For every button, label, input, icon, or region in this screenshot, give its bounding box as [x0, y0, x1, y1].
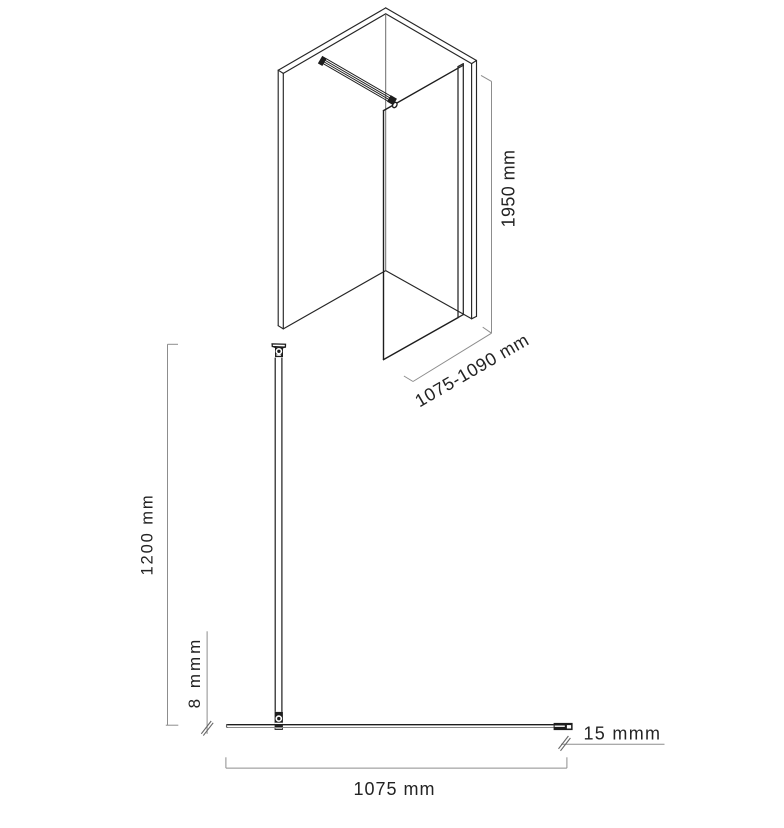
svg-text:15 mmm: 15 mmm: [584, 723, 662, 743]
svg-text:1200 mm: 1200 mm: [139, 493, 157, 575]
svg-text:1950 mm: 1950 mm: [499, 150, 519, 228]
svg-text:8 mmm: 8 mmm: [185, 637, 204, 709]
svg-text:1075-1090 mm: 1075-1090 mm: [411, 330, 532, 411]
svg-text:1075 mm: 1075 mm: [353, 779, 435, 799]
